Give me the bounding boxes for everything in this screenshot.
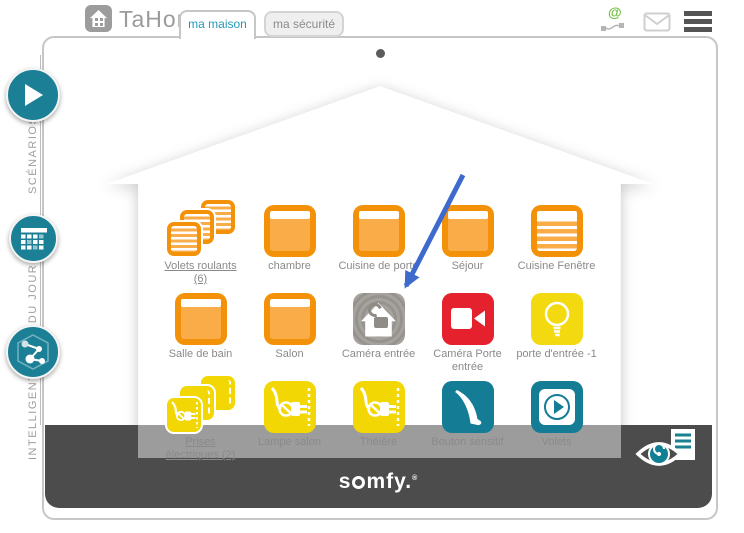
device-label-link[interactable]: Prisesélectriques (2) [152,436,250,462]
shutter-open-icon[interactable] [175,293,227,345]
connection-status-icon[interactable]: @ [600,4,630,32]
device-chambre[interactable]: chambre [245,200,334,288]
device-label: Théière [330,436,428,449]
device-label: Caméra entrée [330,348,428,361]
sensitive-button-icon[interactable] [442,381,494,433]
network-icon [13,332,53,372]
shutter-group-icon[interactable] [167,200,235,257]
tab-ma-maison[interactable]: ma maison [179,10,256,39]
device-label: Séjour [419,260,517,273]
device-sejour[interactable]: Séjour [423,200,512,288]
shutter-open-icon[interactable] [264,293,316,345]
device-bouton-sensitif[interactable]: Bouton sensitif [423,376,512,464]
device-theiere[interactable]: Théière [334,376,423,464]
shutter-open-icon[interactable] [353,205,405,257]
device-label: Caméra Porteentrée [419,348,517,374]
device-lampe-salon[interactable]: Lampe salon [245,376,334,464]
shutter-play-icon[interactable] [531,381,583,433]
plug-icon[interactable] [353,381,405,433]
house-glyph [89,9,108,28]
history-view-button[interactable] [634,425,704,483]
device-cuisine-de-porte[interactable]: Cuisine de porte [334,200,423,288]
sidebar-label-intelligent: INTELLIGENT [27,386,39,460]
device-cuisine-fenetre[interactable]: Cuisine Fenêtre [512,200,601,288]
device-salle-de-bain[interactable]: Salle de bain [156,288,245,376]
mail-icon[interactable] [643,12,671,32]
device-volets-roulants-group[interactable]: Volets roulants(6) [156,200,245,288]
shutter-open-icon[interactable] [442,205,494,257]
device-salon[interactable]: Salon [245,288,334,376]
at-icon: @ [608,4,622,20]
device-grid: Volets roulants(6) chambre Cuisine de po… [156,200,601,464]
calendar-grid-icon [20,226,48,252]
tahoma-logo-icon [85,5,112,32]
shutter-open-icon[interactable] [264,205,316,257]
device-porte-entree-1[interactable]: porte d'entrée -1 [512,288,601,376]
device-camera-entree[interactable]: Caméra entrée [334,288,423,376]
video-camera-icon[interactable] [442,293,494,345]
somfy-logo: smfy.® [45,470,712,494]
sidebar-label-scenarios: SCÉNARIOS [27,122,39,194]
device-label: Bouton sensitif [419,436,517,449]
device-label: Cuisine de porte [330,260,428,273]
device-label: Cuisine Fenêtre [508,260,606,273]
shutter-closed-icon[interactable] [531,205,583,257]
device-label: Salle de bain [152,348,250,361]
plug-icon[interactable] [264,381,316,433]
plug-group-icon[interactable] [167,376,235,433]
device-prises-electriques-group[interactable]: Prisesélectriques (2) [156,376,245,464]
security-camera-icon[interactable] [353,293,405,345]
menu-icon[interactable] [684,11,712,35]
somfy-o-ring [352,476,365,489]
device-label: Salon [241,348,339,361]
device-label: porte d'entrée -1 [508,348,606,361]
device-volets[interactable]: Volets [512,376,601,464]
device-camera-porte-entree[interactable]: Caméra Porteentrée [423,288,512,376]
device-label-link[interactable]: Volets roulants(6) [152,260,250,286]
sidebar-item-intelligent[interactable] [6,325,60,379]
play-icon [22,83,44,107]
device-label: chambre [241,260,339,273]
tab-ma-securite[interactable]: ma sécurité [264,11,344,37]
sidebar-item-scenarios[interactable] [6,68,60,122]
house-apex-dot [376,49,385,58]
sidebar-item-agenda[interactable] [9,214,58,263]
device-label: Volets [508,436,606,449]
light-bulb-icon[interactable] [531,293,583,345]
device-label: Lampe salon [241,436,339,449]
